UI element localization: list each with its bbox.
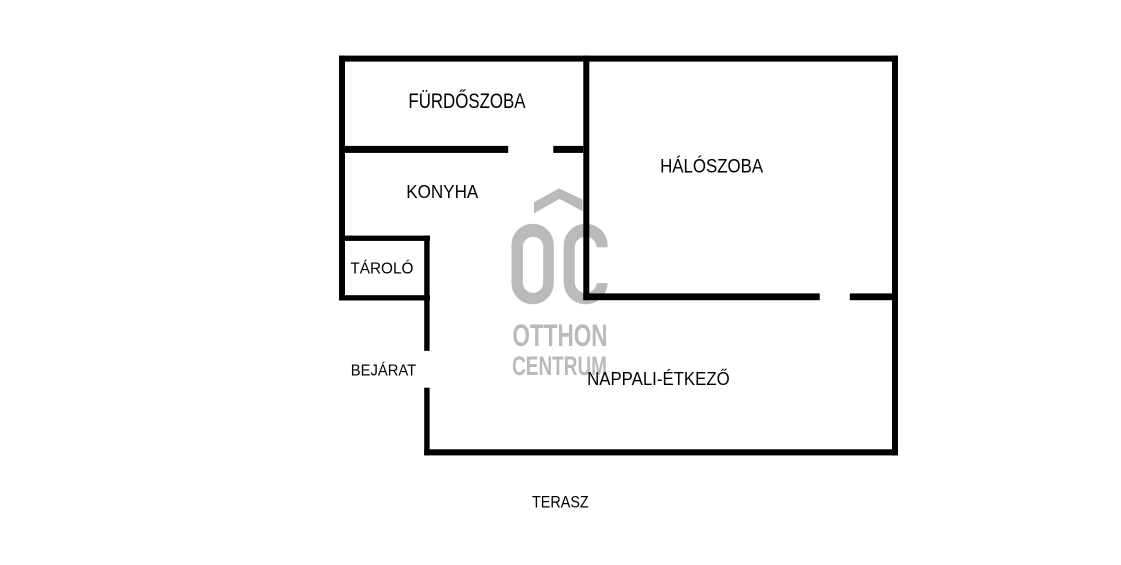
svg-text:HÁLÓSZOBA: HÁLÓSZOBA — [660, 155, 763, 177]
svg-text:FÜRDŐSZOBA: FÜRDŐSZOBA — [408, 90, 526, 113]
svg-text:TÁROLÓ: TÁROLÓ — [350, 259, 413, 278]
svg-text:KONYHA: KONYHA — [406, 181, 479, 202]
svg-text:OTTHON: OTTHON — [512, 317, 607, 353]
svg-text:NAPPALI-ÉTKEZŐ: NAPPALI-ÉTKEZŐ — [587, 368, 730, 389]
svg-text:BEJÁRAT: BEJÁRAT — [351, 361, 417, 380]
svg-text:TERASZ: TERASZ — [532, 493, 589, 512]
